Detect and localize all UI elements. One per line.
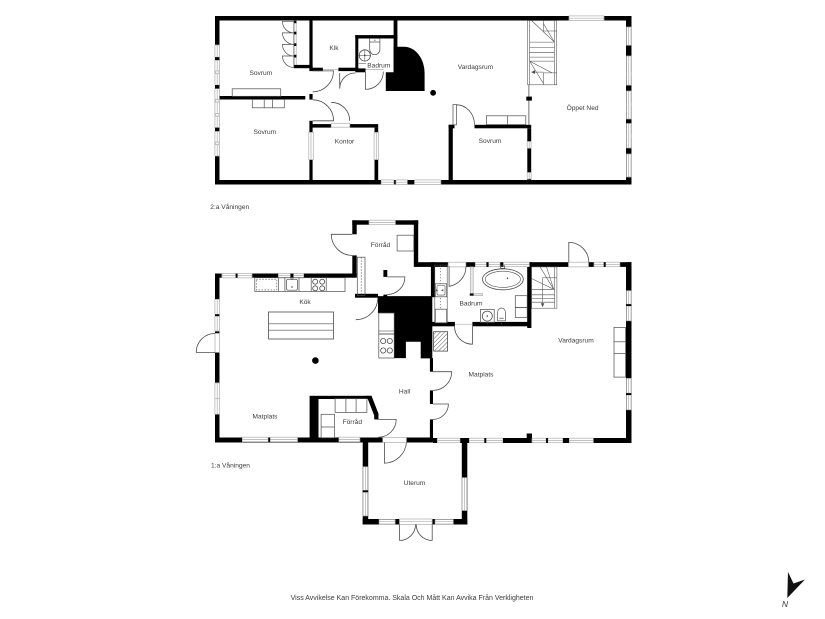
svg-text:Vardagsrum: Vardagsrum bbox=[558, 338, 594, 345]
svg-text:Klk: Klk bbox=[329, 45, 339, 52]
svg-text:Sovrum: Sovrum bbox=[253, 129, 276, 136]
svg-text:Badrum: Badrum bbox=[459, 300, 483, 307]
svg-text:Sovrum: Sovrum bbox=[249, 70, 272, 77]
svg-text:Öppet Ned: Öppet Ned bbox=[567, 104, 599, 112]
svg-text:Sovrum: Sovrum bbox=[479, 138, 502, 145]
svg-text:Badrum: Badrum bbox=[367, 62, 391, 69]
svg-text:Viss Avvikelse Kan Förekomma.: Viss Avvikelse Kan Förekomma. Skala Och … bbox=[291, 594, 534, 602]
svg-text:Förråd: Förråd bbox=[343, 418, 363, 426]
svg-text:Förråd: Förråd bbox=[371, 241, 391, 249]
svg-text:Vardagsrum: Vardagsrum bbox=[458, 64, 494, 71]
svg-text:Uterum: Uterum bbox=[404, 480, 426, 487]
svg-text:Kök: Kök bbox=[299, 299, 311, 306]
svg-text:Hall: Hall bbox=[399, 388, 411, 395]
svg-text:1:a Våningen: 1:a Våningen bbox=[211, 461, 250, 469]
svg-text:2:a Våningen: 2:a Våningen bbox=[210, 203, 249, 211]
svg-text:Kontor: Kontor bbox=[335, 139, 355, 146]
svg-text:Matplats: Matplats bbox=[469, 371, 495, 378]
svg-text:N: N bbox=[782, 599, 789, 609]
svg-text:Matplats: Matplats bbox=[253, 413, 279, 420]
